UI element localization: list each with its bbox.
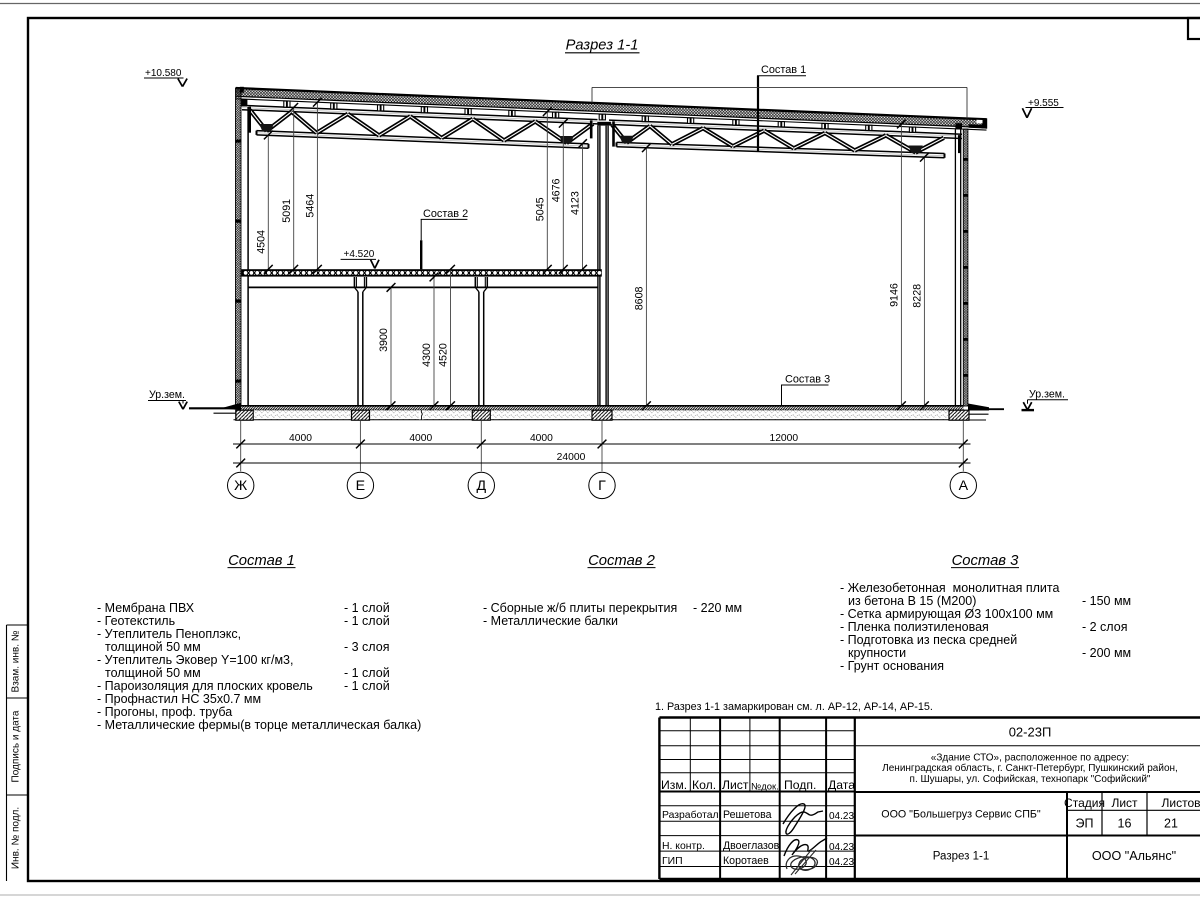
svg-text:- 1 слой: - 1 слой [344, 614, 390, 628]
svg-text:Разрез 1-1: Разрез 1-1 [566, 38, 639, 54]
svg-text:- Мембрана ПВХ: - Мембрана ПВХ [97, 601, 195, 615]
svg-text:- 1 слой: - 1 слой [344, 666, 390, 680]
svg-text:Е: Е [356, 478, 365, 494]
svg-text:крупности: крупности [848, 646, 906, 660]
svg-text:4300: 4300 [421, 343, 433, 367]
svg-text:Состав 2: Состав 2 [588, 553, 656, 569]
svg-text:«Здание СТО», расположенное по: «Здание СТО», расположенное по адресу: [931, 753, 1129, 764]
svg-text:- 3 слоя: - 3 слоя [344, 640, 389, 654]
svg-text:- 1 слой: - 1 слой [344, 679, 390, 693]
svg-text:02-23П: 02-23П [1009, 725, 1052, 740]
svg-text:4123: 4123 [570, 191, 582, 215]
svg-text:А: А [959, 478, 969, 494]
svg-text:Состав 3: Состав 3 [785, 374, 830, 386]
svg-text:- Подготовка из песка средней: - Подготовка из песка средней [840, 633, 1017, 647]
svg-text:Лист: Лист [1111, 796, 1138, 810]
svg-text:Подп.: Подп. [784, 778, 816, 792]
svg-text:- Металлические фермы(в торце: - Металлические фермы(в торце металличес… [97, 718, 421, 732]
svg-text:Состав 1: Состав 1 [228, 553, 295, 569]
svg-text:Изм.: Изм. [661, 778, 687, 792]
svg-text:№док.: №док. [751, 781, 779, 792]
svg-text:- Профнастил НС 35х0.7 мм: - Профнастил НС 35х0.7 мм [97, 692, 261, 706]
svg-text:Дата: Дата [828, 778, 855, 792]
svg-text:4520: 4520 [438, 343, 450, 367]
svg-text:толщиной 50 мм: толщиной 50 мм [105, 640, 201, 654]
svg-text:толщиной 50 мм: толщиной 50 мм [105, 666, 201, 680]
svg-text:Кол.: Кол. [692, 778, 716, 792]
svg-text:- Сетка армирующая Ø3 100х100: - Сетка армирующая Ø3 100х100 мм [840, 607, 1053, 621]
svg-text:- Грунт основания: - Грунт основания [840, 659, 944, 673]
svg-text:Коротаев: Коротаев [723, 855, 769, 867]
svg-text:- Железобетонная монолитная п: - Железобетонная монолитная плита [840, 581, 1059, 595]
svg-text:Состав 1: Состав 1 [761, 64, 806, 76]
svg-text:Ур.зем.: Ур.зем. [149, 389, 185, 401]
svg-text:- Прогоны, проф. труба: - Прогоны, проф. труба [97, 705, 232, 719]
svg-text:3900: 3900 [378, 328, 390, 352]
svg-text:- 150 мм: - 150 мм [1082, 594, 1131, 608]
svg-text:- Пароизоляция для плоских кро: - Пароизоляция для плоских кровель [97, 679, 313, 693]
svg-text:- Металлические балки: - Металлические балки [483, 614, 618, 628]
svg-text:Лист: Лист [722, 778, 749, 792]
svg-text:4676: 4676 [551, 178, 563, 202]
svg-text:из бетона В 15 (М200): из бетона В 15 (М200) [848, 594, 976, 608]
svg-text:8608: 8608 [634, 286, 646, 310]
svg-text:Взам. инв. №: Взам. инв. № [11, 630, 22, 692]
svg-text:- Геотекстиль: - Геотекстиль [97, 614, 175, 628]
svg-text:Разрез 1-1: Разрез 1-1 [933, 851, 989, 863]
svg-text:5464: 5464 [305, 194, 317, 218]
svg-text:- Пленка полиэтиленовая: - Пленка полиэтиленовая [840, 620, 989, 634]
svg-text:ЭП: ЭП [1076, 817, 1094, 831]
svg-text:24000: 24000 [557, 452, 586, 463]
svg-text:Ж: Ж [234, 478, 247, 494]
svg-text:- 200 мм: - 200 мм [1082, 646, 1131, 660]
svg-text:04.23: 04.23 [829, 811, 854, 822]
svg-text:ООО "Большегруз Сервис СПБ": ООО "Большегруз Сервис СПБ" [881, 809, 1041, 821]
svg-text:4000: 4000 [409, 433, 432, 444]
svg-text:16: 16 [1118, 817, 1132, 831]
svg-text:- 220 мм: - 220 мм [693, 601, 742, 615]
svg-text:Д: Д [476, 478, 486, 494]
svg-text:п. Шушары, ул. Софийская, техн: п. Шушары, ул. Софийская, технопарк "Соф… [910, 773, 1151, 785]
svg-text:21: 21 [1164, 817, 1178, 831]
svg-text:4000: 4000 [289, 433, 312, 444]
svg-text:04.23: 04.23 [829, 842, 854, 853]
svg-text:+4.520: +4.520 [344, 249, 375, 260]
svg-text:1. Разрез 1-1 замаркирован см.: 1. Разрез 1-1 замаркирован см. л. АР-12,… [655, 701, 933, 713]
svg-text:Состав 3: Состав 3 [952, 553, 1020, 569]
svg-text:Состав 2: Состав 2 [423, 208, 468, 220]
svg-text:5045: 5045 [535, 197, 547, 221]
svg-text:Инв. № подл.: Инв. № подл. [11, 807, 22, 869]
svg-text:8228: 8228 [912, 284, 924, 308]
svg-text:Двоеглазов: Двоеглазов [723, 840, 780, 852]
svg-text:Подпись и дата: Подпись и дата [11, 710, 22, 782]
svg-text:ГИП: ГИП [662, 856, 683, 867]
svg-text:12000: 12000 [769, 433, 798, 444]
svg-text:Решетова: Решетова [723, 809, 772, 821]
svg-text:Разработал: Разработал [662, 809, 719, 821]
svg-text:Г: Г [598, 478, 606, 494]
svg-text:Стадия: Стадия [1064, 796, 1105, 810]
svg-text:Н. контр.: Н. контр. [662, 841, 705, 852]
svg-text:- 1 слой: - 1 слой [344, 601, 390, 615]
svg-text:ООО "Альянс": ООО "Альянс" [1092, 849, 1176, 863]
svg-text:Листов: Листов [1162, 796, 1200, 810]
svg-text:- Утеплитель Эковер Y=100 кг/м: - Утеплитель Эковер Y=100 кг/м3, [97, 653, 293, 667]
svg-text:- 2 слоя: - 2 слоя [1082, 620, 1127, 634]
svg-text:- Сборные ж/б плиты перекрытия: - Сборные ж/б плиты перекрытия [483, 601, 677, 615]
svg-text:4000: 4000 [530, 433, 553, 444]
svg-text:Ур.зем.: Ур.зем. [1029, 389, 1065, 401]
svg-text:- Утеплитель Пеноплэкс,: - Утеплитель Пеноплэкс, [97, 627, 241, 641]
svg-text:04.23: 04.23 [829, 857, 854, 868]
svg-text:5091: 5091 [281, 199, 293, 223]
svg-text:Ленинградская область, г. Санк: Ленинградская область, г. Санкт-Петербур… [882, 762, 1178, 774]
svg-text:4504: 4504 [256, 230, 268, 254]
svg-text:9146: 9146 [889, 283, 901, 307]
